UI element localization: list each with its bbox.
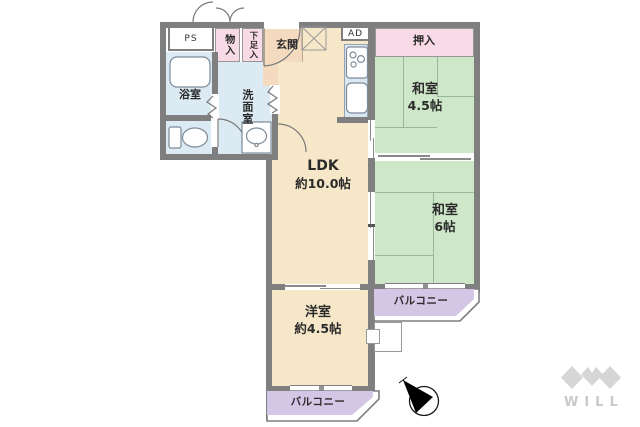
room-bathroom-area (166, 52, 214, 115)
japanese-large-size: 6帖 (434, 219, 455, 235)
tatami-line (375, 127, 437, 128)
label-balcony-bottom: バルコニー (275, 396, 361, 409)
western-name: 洋室 (305, 305, 331, 321)
entrance-door-gap (264, 21, 299, 29)
ldk-name: LDK (307, 158, 338, 176)
sliding-door-ldk-japanese-large (368, 192, 375, 260)
japanese-large-name: 和室 (432, 203, 458, 219)
floorplan-canvas: PS AD (0, 0, 640, 427)
wall-sanitary-bottom (160, 154, 278, 160)
sliding-door-ldk-japanese-small (368, 120, 375, 158)
sliding-door-ldk-western (285, 284, 360, 290)
label-washroom: 洗面室 (236, 78, 258, 136)
label-storage: 物入 (217, 30, 238, 60)
japanese-small-name: 和室 (412, 82, 438, 98)
label-western: 洋室 約4.5帖 (273, 305, 363, 337)
label-bathroom: 浴室 (166, 88, 214, 102)
air-duct-box: AD (341, 26, 370, 41)
wall-right (474, 22, 480, 293)
air-duct-label: AD (348, 29, 363, 39)
brand-logo: WILL (561, 362, 624, 410)
room-toilet-area (166, 121, 214, 154)
label-shoe-box: 下足入 (243, 29, 262, 61)
folding-door-gap (270, 85, 280, 114)
pipe-space-box: PS (168, 26, 214, 51)
label-oshiire: 押入 (379, 34, 469, 48)
pipe-space-label: PS (184, 34, 197, 44)
meter-box-inner (366, 329, 380, 344)
label-japanese-large: 和室 6帖 (400, 203, 490, 235)
storage-double-door-arcs (216, 8, 244, 22)
outside-door-arc (193, 2, 213, 22)
label-entrance: 玄関 (268, 38, 306, 52)
window-japanese-balcony (385, 283, 465, 291)
tatami-line (375, 255, 433, 256)
western-size: 約4.5帖 (294, 321, 341, 337)
tatami-line (375, 192, 474, 193)
entrance-hall-strip (263, 62, 278, 86)
window-western-balcony (290, 385, 352, 393)
kitchen-counter (344, 44, 368, 118)
label-ldk: LDK 約10.0帖 (278, 158, 368, 191)
label-japanese-small: 和室 4.5帖 (380, 82, 470, 114)
label-balcony-right: バルコニー (378, 295, 464, 308)
brand-logo-text: WILL (564, 395, 624, 410)
wall-bath-toilet (166, 115, 214, 121)
ldk-size: 約10.0帖 (295, 176, 351, 192)
compass-icon (399, 377, 439, 416)
fusuma-between-japanese-rooms (375, 153, 474, 161)
japanese-small-size: 4.5帖 (408, 98, 443, 114)
wall-washroom-corridor (272, 113, 278, 160)
toilet-door-gap (211, 119, 219, 147)
